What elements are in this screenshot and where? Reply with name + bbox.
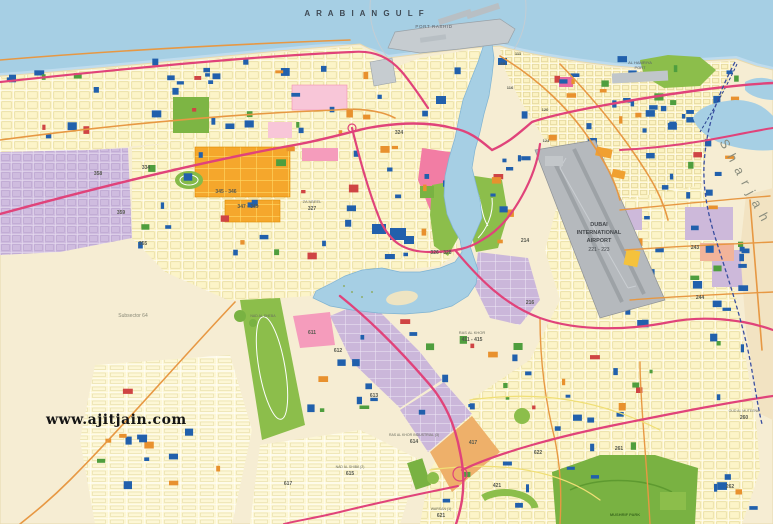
building (521, 156, 530, 160)
building (422, 111, 428, 117)
building (600, 89, 607, 93)
map-label: INTERNATIONAL (577, 230, 622, 236)
building (318, 376, 328, 382)
building (387, 168, 392, 172)
map-label: 244 (696, 295, 705, 301)
building (682, 114, 685, 119)
building (169, 454, 178, 460)
map-label: 612 (334, 348, 343, 354)
building (205, 73, 210, 76)
building (549, 135, 557, 141)
building (380, 146, 389, 153)
building (566, 395, 571, 398)
building (307, 404, 314, 412)
building (360, 335, 364, 340)
map-label: 614 (410, 439, 419, 445)
building (185, 429, 193, 436)
building (470, 403, 475, 409)
building (738, 285, 748, 291)
map-label: PORT (634, 65, 646, 70)
karama-pink (302, 148, 338, 161)
building (670, 174, 673, 180)
map-label: 421 (493, 483, 502, 489)
building (94, 87, 99, 93)
map-label: RAS AL KHOR INDUSTRIAL (3) (389, 433, 439, 437)
building (713, 301, 722, 308)
map-label: 611 (308, 330, 316, 336)
building (522, 111, 528, 118)
building (573, 415, 582, 421)
building (723, 308, 732, 311)
dubai-city-map[interactable]: A R A B I A N G U L FPORT RASHIDAL HAMRI… (0, 0, 773, 524)
map-label: NAD AL SHEBA (250, 314, 276, 318)
map-label: 221 - 223 (588, 247, 609, 253)
building (669, 122, 676, 128)
building (392, 146, 398, 149)
building (42, 125, 45, 130)
building (221, 215, 229, 221)
building (167, 75, 175, 80)
building (426, 343, 434, 350)
building (590, 444, 594, 452)
building (301, 190, 305, 193)
building (587, 418, 594, 423)
building (631, 442, 636, 450)
map-label: RAS AL KHOR (459, 330, 486, 335)
map-label: 359 (117, 210, 126, 216)
building (245, 120, 254, 127)
map-label: AIRPORT (587, 238, 612, 244)
building (470, 344, 474, 349)
building (525, 371, 531, 375)
building (233, 250, 238, 256)
building (409, 332, 417, 336)
building (709, 206, 718, 210)
pink-zone-coast (292, 85, 347, 110)
building (213, 73, 221, 79)
map-label: 124 (543, 138, 550, 143)
building (172, 88, 178, 95)
map-label: 243 (691, 245, 700, 251)
building (337, 359, 345, 366)
building (562, 379, 565, 385)
map-label: NAD AL SHIBA (2) (336, 465, 365, 469)
building (144, 457, 149, 461)
building (321, 66, 327, 72)
building (349, 185, 359, 193)
building (686, 192, 690, 199)
building (177, 81, 184, 84)
building (555, 76, 561, 83)
building (646, 153, 655, 158)
building (749, 506, 757, 510)
building (199, 152, 203, 158)
building (365, 383, 372, 389)
building (559, 79, 567, 83)
map-label: A R A B I A N G U L F (304, 9, 425, 18)
building (738, 242, 743, 247)
building (613, 368, 618, 375)
building (152, 59, 158, 66)
building (423, 185, 427, 192)
building (124, 481, 132, 489)
building (662, 185, 669, 190)
building (739, 254, 744, 261)
building (194, 76, 201, 80)
building (741, 344, 744, 352)
building (141, 224, 149, 230)
building (717, 341, 721, 346)
building (347, 205, 356, 211)
building (502, 159, 506, 163)
building (275, 70, 283, 73)
map-label: 411 - 415 (462, 337, 483, 343)
map-label: OUD AL MUTEENA (729, 409, 760, 413)
building (395, 195, 401, 199)
map-label: 345 - 346 (215, 189, 236, 195)
map-label: DUBAI (590, 222, 608, 228)
landmark-building (436, 96, 446, 104)
building (97, 459, 105, 463)
jumeira-residential-purple (0, 148, 132, 255)
building (216, 466, 220, 472)
building (126, 437, 132, 445)
building (346, 110, 353, 118)
building (443, 499, 450, 503)
building (713, 266, 721, 272)
map-label: 417 (469, 440, 478, 446)
building (706, 190, 713, 196)
building (710, 334, 717, 342)
building (567, 93, 577, 98)
building (500, 206, 508, 212)
pink-zone-small (268, 122, 292, 138)
building (68, 122, 77, 130)
building (532, 406, 535, 410)
building (688, 162, 693, 169)
building (192, 108, 196, 112)
building (619, 116, 622, 123)
map-label: WARSAN (1) (431, 507, 451, 511)
building (601, 80, 608, 86)
map-label: 358 (94, 171, 103, 177)
building (515, 503, 523, 508)
building (378, 95, 382, 99)
building (169, 481, 178, 486)
building (299, 128, 304, 133)
landmark-building (404, 236, 414, 244)
map-label: 260 (740, 415, 749, 421)
building (691, 226, 699, 231)
building (184, 173, 193, 180)
building (567, 467, 575, 470)
building (203, 68, 210, 72)
map-label: 617 (284, 481, 293, 487)
map-label: 324 (395, 130, 404, 136)
map-canvas: A R A B I A N G U L FPORT RASHIDAL HAMRI… (0, 0, 773, 524)
building (591, 475, 599, 479)
building (586, 123, 591, 129)
building (503, 383, 507, 388)
building (492, 177, 501, 184)
building (419, 410, 425, 415)
building (357, 397, 362, 404)
map-label: 120 (542, 107, 549, 112)
map-label: 334 (142, 165, 151, 171)
building (635, 113, 641, 118)
building (649, 105, 658, 110)
building (686, 110, 694, 114)
building (442, 375, 448, 383)
building (734, 76, 739, 82)
building (123, 389, 133, 394)
building (518, 155, 521, 161)
safa-park (173, 97, 209, 133)
building (161, 202, 164, 209)
building (400, 319, 410, 324)
building (363, 72, 368, 79)
building (725, 474, 731, 480)
map-label: 214 (521, 238, 530, 244)
building (360, 406, 370, 410)
building (526, 484, 529, 492)
building (385, 254, 395, 259)
watermark: www.ajitjain.com (46, 412, 187, 428)
building (455, 67, 461, 74)
map-label: 327 (308, 206, 317, 212)
building (225, 124, 234, 130)
building (165, 225, 171, 229)
building (661, 106, 666, 111)
building (152, 110, 162, 117)
building (632, 383, 639, 388)
building (727, 70, 733, 74)
building (208, 80, 213, 84)
map-label: MUSHRIF PARK (610, 512, 640, 517)
building (714, 484, 717, 492)
building (512, 355, 517, 362)
building (619, 403, 626, 411)
building (693, 281, 702, 289)
building (693, 152, 702, 157)
building (742, 249, 750, 254)
building (670, 100, 676, 105)
building (555, 426, 561, 431)
building (590, 355, 600, 359)
map-label: 622 (534, 450, 543, 456)
building (706, 245, 714, 253)
building (240, 240, 244, 245)
building (345, 220, 351, 227)
building (503, 462, 512, 466)
map-label: 355 (139, 241, 148, 247)
building (308, 253, 317, 260)
building (690, 276, 699, 280)
building (320, 408, 324, 412)
building (260, 235, 269, 239)
building (119, 434, 126, 438)
building (506, 167, 513, 171)
building (738, 264, 747, 268)
map-label: 615 (346, 471, 355, 477)
building (514, 343, 523, 350)
building (352, 359, 360, 366)
building (736, 489, 743, 494)
building (674, 65, 678, 72)
building (488, 352, 498, 358)
map-label: 262 (726, 484, 735, 490)
building (646, 110, 655, 117)
building (717, 394, 721, 400)
map-label: 216 (526, 300, 535, 306)
building (296, 122, 299, 128)
building (497, 240, 502, 244)
map-label: 116 (507, 85, 514, 90)
building (274, 249, 279, 255)
building (422, 229, 427, 236)
building (403, 253, 408, 257)
map-label: PORT RASHID (415, 24, 452, 29)
map-label: 111 (515, 51, 522, 56)
building (322, 241, 326, 247)
building (139, 437, 147, 443)
building (211, 118, 215, 125)
building (425, 174, 430, 179)
map-label: 261 (615, 446, 624, 452)
map-label: 326 - 328 (430, 250, 451, 256)
map-label: 115 (499, 61, 506, 66)
map-label: ZA'ABEEL (303, 199, 323, 204)
building (644, 216, 650, 219)
map-label: Subsector 64 (118, 313, 148, 319)
building (643, 128, 647, 132)
building (363, 115, 370, 120)
building (715, 172, 722, 176)
building (618, 56, 628, 62)
map-label: 621 (437, 513, 446, 519)
building (490, 194, 495, 197)
map-label: 347 - 349 (237, 204, 258, 210)
building (276, 159, 286, 166)
map-label: 613 (370, 393, 379, 399)
building (650, 370, 653, 374)
building (144, 442, 154, 449)
building (291, 93, 300, 97)
